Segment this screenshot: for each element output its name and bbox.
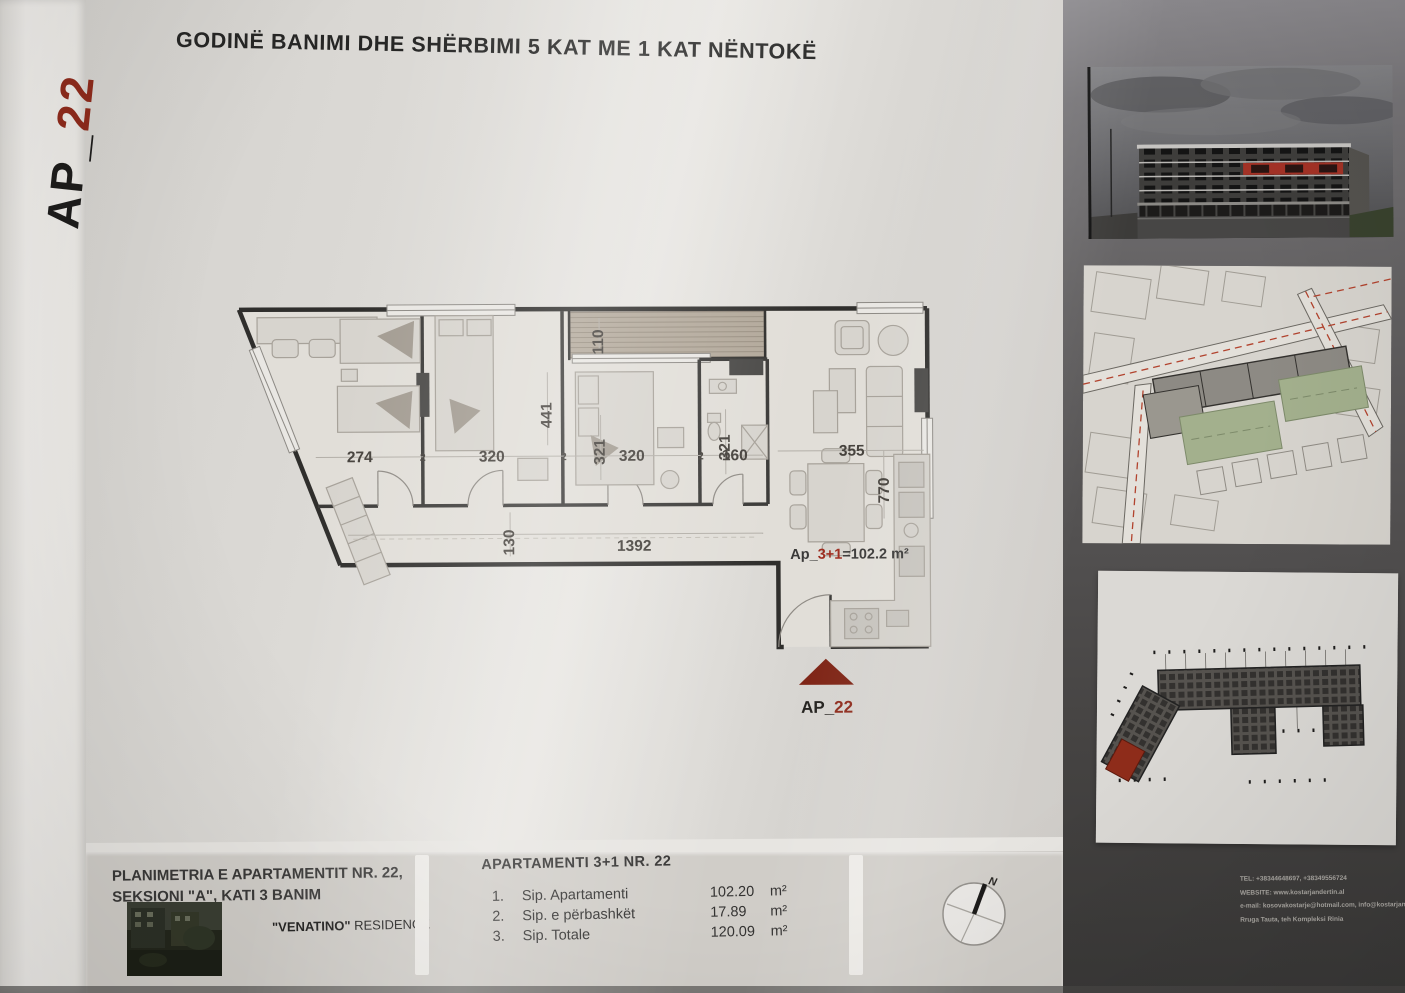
- area-label-prefix: Ap_: [790, 547, 818, 563]
- contact-address: Rruga Tauta, teh Kompleksi Rinia: [1240, 912, 1405, 927]
- dim-321a: 321: [592, 439, 609, 465]
- drawing-sheet: GODINË BANIMI DHE SHËRBIMI 5 KAT ME 1 KA…: [86, 0, 1063, 993]
- row-label: Sip. Totale: [523, 927, 591, 944]
- row-unit: m²: [770, 883, 787, 899]
- row-number: 1.: [492, 889, 504, 905]
- row-value: 120.09: [710, 924, 755, 941]
- residence-name-quoted: "VENATINO": [272, 918, 351, 935]
- dim-355: 355: [839, 443, 865, 460]
- row-value: 17.89: [710, 904, 747, 921]
- dim-wall-2b: 2: [561, 451, 567, 463]
- row-unit: m²: [770, 923, 787, 939]
- row-label: Sip. e përbashkët: [522, 906, 635, 924]
- sheet-title: GODINË BANIMI DHE SHËRBIMI 5 KAT ME 1 KA…: [176, 28, 817, 65]
- area-table-title: APARTAMENTI 3+1 NR. 22: [481, 851, 801, 873]
- unit-marker-prefix: AP_: [801, 698, 835, 717]
- contact-website: WEBSITE: www.kostarjandertin.al: [1240, 885, 1405, 900]
- dim-770: 770: [876, 477, 893, 503]
- titleblock-divider-1: [415, 855, 429, 975]
- dim-274: 274: [347, 449, 373, 466]
- photo-bottom-edge: [0, 986, 1405, 993]
- dim-130: 130: [501, 529, 518, 555]
- plan-description: PLANIMETRIA E APARTAMENTIT NR. 22, SEKSI…: [112, 862, 403, 908]
- floor-key-plan-image: [1096, 571, 1398, 846]
- unit-marker-triangle: [799, 659, 854, 685]
- plan-description-line1: PLANIMETRIA E APARTAMENTIT NR. 22,: [112, 862, 403, 887]
- sidebar-panel: TEL: +38344648697, +38349556724 WEBSITE:…: [1063, 0, 1405, 993]
- contact-email: e-mail: kosovakostarje@hotmail.com, info…: [1240, 899, 1405, 914]
- apartment-code-number: 22: [46, 71, 104, 133]
- unit-marker-label: AP_22: [801, 698, 853, 717]
- titleblock-divider-2: [849, 855, 863, 975]
- dim-1392: 1392: [617, 538, 652, 555]
- dim-110: 110: [590, 329, 607, 354]
- area-label: Ap_3+1=102.2 m²: [790, 546, 909, 563]
- sheet-left-margin: AP_22: [0, 0, 86, 993]
- row-number: 3.: [493, 929, 505, 945]
- dim-320b: 320: [619, 448, 645, 465]
- floor-plan-drawing: 274 320 320 160 355 1392 441 321 321 770…: [217, 278, 964, 727]
- row-number: 2.: [492, 909, 504, 925]
- apartment-floor-plan: 274 320 320 160 355 1392 441 321 321 770…: [217, 278, 964, 727]
- contact-info: TEL: +38344648697, +38349556724 WEBSITE:…: [1240, 871, 1405, 927]
- residence-photo-thumbnail: [127, 902, 222, 976]
- apartment-area-table: APARTAMENTI 3+1 NR. 22 1. Sip. Apartamen…: [481, 851, 803, 949]
- building-render-image: [1087, 65, 1390, 239]
- dim-wall-2c: 2: [698, 450, 704, 462]
- dim-441: 441: [538, 402, 555, 428]
- row-value: 102.20: [710, 884, 755, 901]
- row-label: Sip. Apartamenti: [522, 886, 629, 904]
- compass-north-label: N: [987, 876, 999, 889]
- dim-320a: 320: [479, 448, 505, 465]
- area-label-value: =102.2 m²: [842, 546, 909, 562]
- dim-321b: 321: [717, 434, 734, 460]
- titleblock: PLANIMETRIA E APARTAMENTIT NR. 22, SEKSI…: [86, 852, 1063, 993]
- apartment-code-prefix: AP_: [36, 128, 98, 231]
- residence-name: "VENATINO" RESIDENCE: [272, 916, 430, 934]
- area-label-type: 3+1: [818, 547, 843, 563]
- row-unit: m²: [770, 903, 787, 919]
- north-compass: N: [941, 876, 1011, 946]
- scanned-plan-sheet: GODINË BANIMI DHE SHËRBIMI 5 KAT ME 1 KA…: [0, 0, 1405, 993]
- site-plan-image: [1082, 265, 1391, 545]
- contact-tel: TEL: +38344648697, +38349556724: [1240, 871, 1405, 886]
- dim-wall-2a: 2: [420, 452, 426, 464]
- unit-marker-number: 22: [834, 698, 853, 717]
